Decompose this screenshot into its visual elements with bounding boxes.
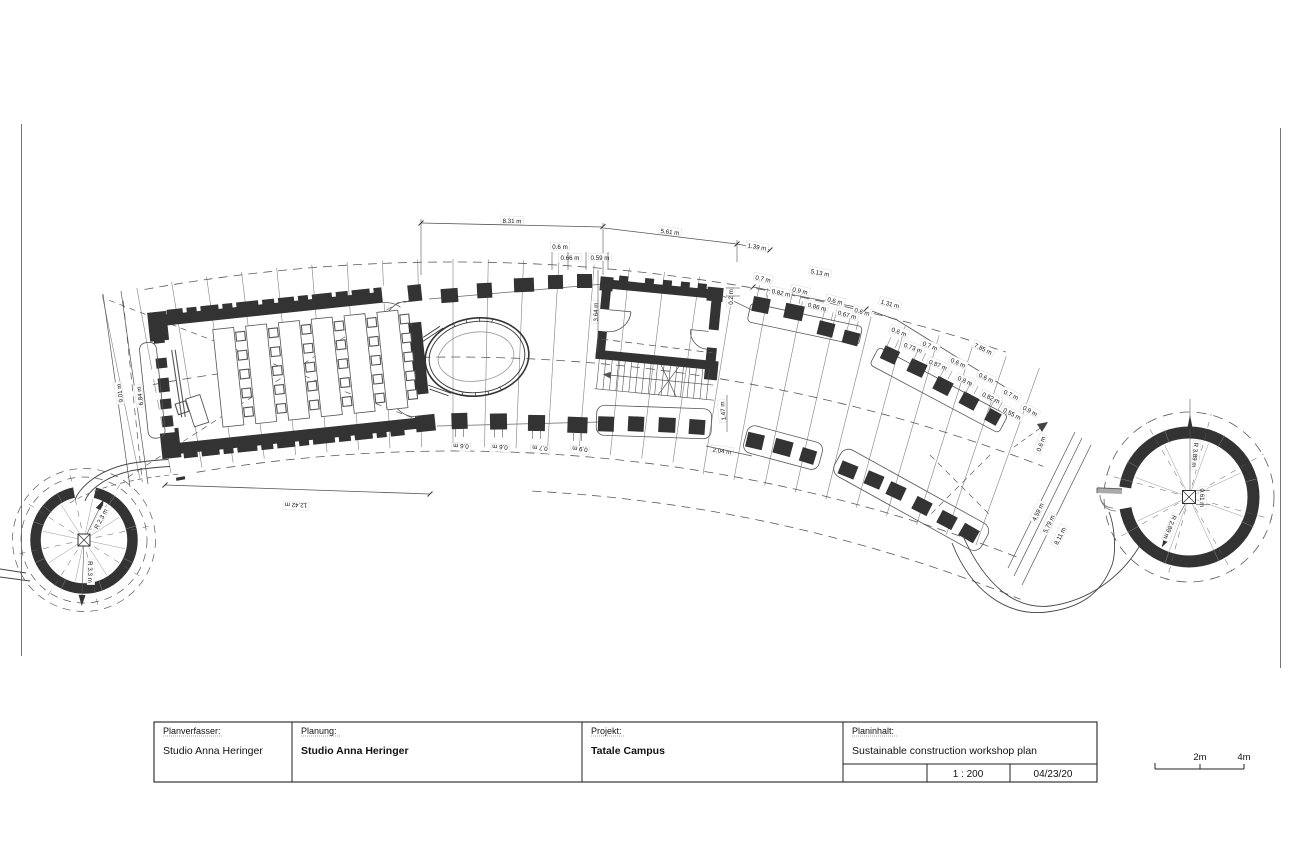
svg-text:12.42 m: 12.42 m	[285, 501, 308, 509]
svg-text:4m: 4m	[1237, 752, 1250, 763]
svg-text:Sustainable construction works: Sustainable construction workshop plan	[852, 745, 1037, 757]
svg-text:Planverfasser:: Planverfasser:	[163, 726, 221, 736]
svg-text:3.64 m: 3.64 m	[593, 303, 600, 322]
svg-text:1 : 200: 1 : 200	[953, 769, 984, 780]
svg-text:0.59 m: 0.59 m	[591, 255, 610, 262]
svg-text:0.6 m: 0.6 m	[552, 244, 567, 251]
svg-text:Tatale Campus: Tatale Campus	[591, 745, 665, 757]
svg-text:Projekt:: Projekt:	[591, 726, 622, 736]
svg-text:0.6 m: 0.6 m	[492, 442, 508, 450]
svg-text:Studio Anna Heringer: Studio Anna Heringer	[301, 745, 409, 757]
svg-text:Studio Anna Heringer: Studio Anna Heringer	[163, 745, 263, 757]
svg-text:2m: 2m	[1193, 752, 1206, 763]
svg-text:0.2 m: 0.2 m	[728, 289, 735, 304]
svg-text:R 3.3 m: R 3.3 m	[86, 561, 93, 583]
svg-text:8.31 m: 8.31 m	[502, 218, 521, 225]
svg-text:0.66 m: 0.66 m	[561, 255, 580, 262]
svg-text:0.6 m: 0.6 m	[453, 441, 469, 449]
svg-text:Planinhalt:: Planinhalt:	[852, 726, 894, 736]
svg-text:04/23/20: 04/23/20	[1034, 769, 1073, 780]
svg-text:Planung:: Planung:	[301, 726, 337, 736]
